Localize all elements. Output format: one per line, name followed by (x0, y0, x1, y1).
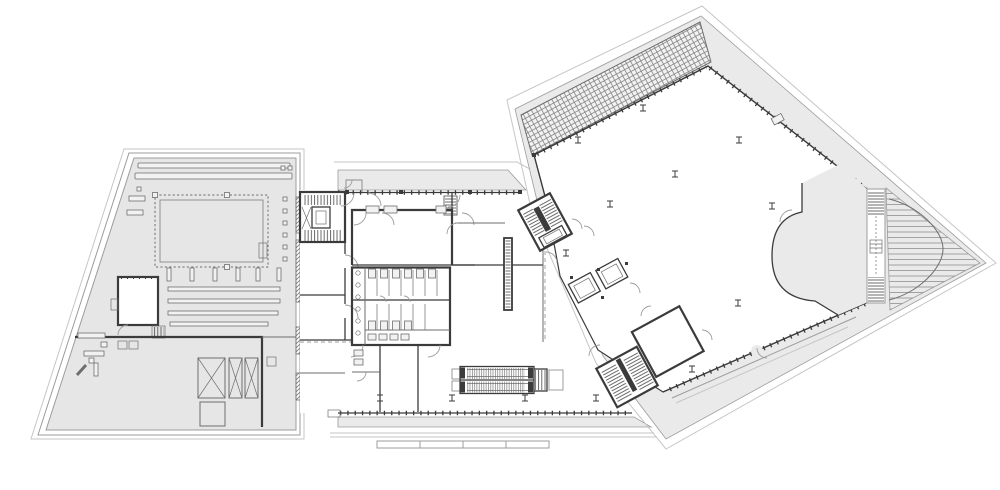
west-stair-core (300, 192, 345, 242)
south-steps (377, 441, 549, 448)
column-marker-icon (593, 395, 599, 401)
skylight-slot (135, 173, 292, 179)
entry-canopy (338, 170, 526, 190)
exhibition-wing (507, 6, 996, 449)
south-terrace-band (338, 417, 651, 427)
louver-strip (867, 189, 885, 303)
stair-icon (303, 195, 342, 205)
escalator-icon (452, 367, 563, 394)
garage-wing (31, 149, 304, 439)
stair-icon (303, 230, 342, 241)
floor-plan-sheet (0, 0, 1000, 490)
skylight-slot (138, 163, 290, 168)
floor-plan-canvas (0, 0, 1000, 490)
